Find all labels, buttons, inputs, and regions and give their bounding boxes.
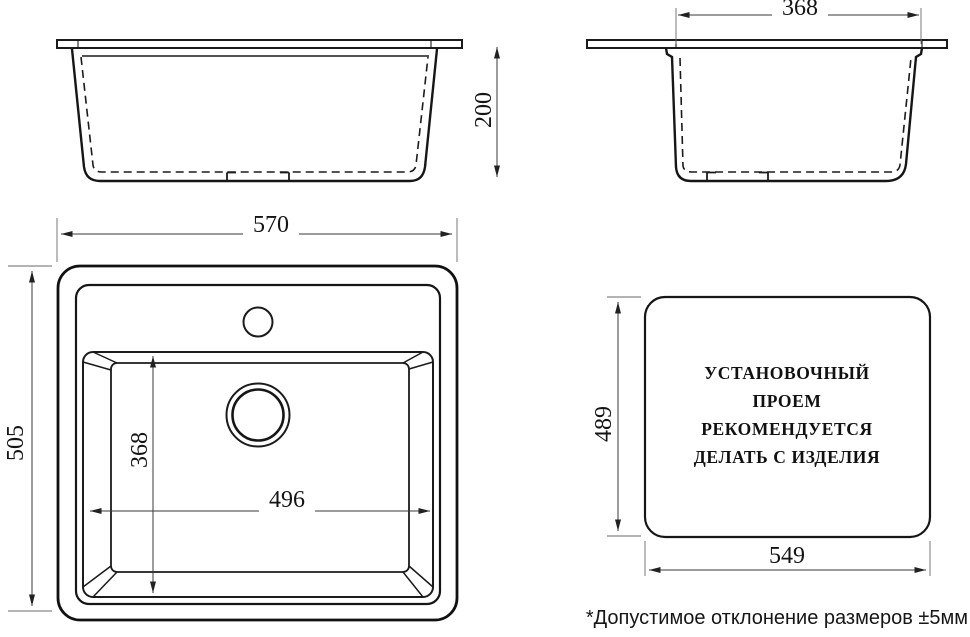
cutout-note-line: РЕКОМЕНДУЕТСЯ: [650, 415, 924, 443]
cutout-note-line: ДЕЛАТЬ С ИЗДЕЛИЯ: [650, 443, 924, 471]
sink-technical-drawing-page: 200 368 570 505 368 496 489 549 УСТАНОВО…: [0, 0, 970, 637]
side-top-width-dim-label: 368: [772, 0, 828, 20]
cutout-width-dim-label: 549: [759, 544, 815, 568]
bowl-depth-dim-label: 368: [128, 422, 152, 478]
top-width-dim-label: 570: [243, 213, 299, 237]
cutout-note-line: ПРОЕМ: [650, 387, 924, 415]
tolerance-footnote: *Допустимое отклонение размеров ±5мм: [586, 605, 968, 631]
bowl-width-dim-label: 496: [259, 488, 315, 512]
front-view: [57, 40, 497, 181]
cutout-note: УСТАНОВОЧНЫЙ ПРОЕМ РЕКОМЕНДУЕТСЯ ДЕЛАТЬ …: [650, 359, 924, 471]
side-view: [587, 8, 947, 181]
top-depth-dim-label: 505: [4, 415, 28, 471]
cutout-note-line: УСТАНОВОЧНЫЙ: [650, 359, 924, 387]
faucet-hole: [244, 308, 273, 337]
front-height-dim-label: 200: [472, 82, 496, 138]
cutout-height-dim-label: 489: [592, 396, 616, 452]
top-view: [8, 218, 457, 620]
drain-hole: [227, 384, 290, 447]
